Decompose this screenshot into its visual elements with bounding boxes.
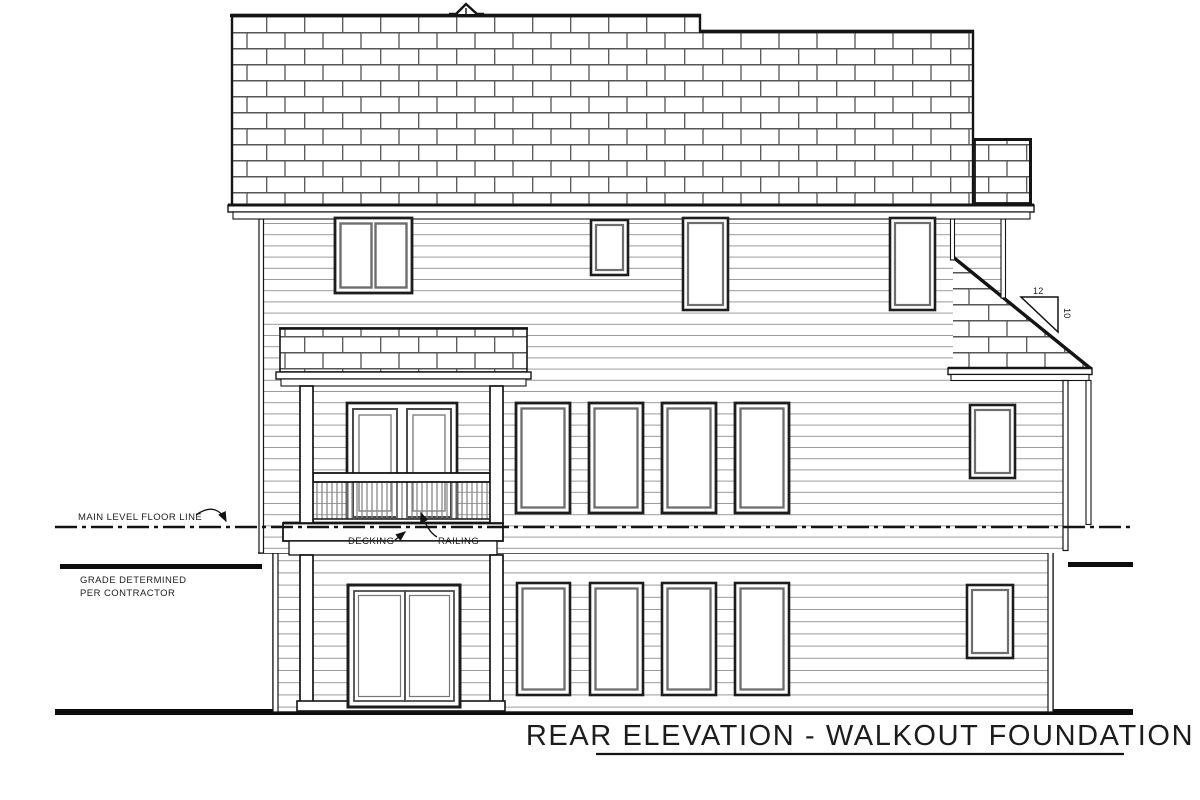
window-main-3 [662,403,716,513]
window-upper-tall-right [890,218,935,310]
deck-post-lower-left [300,555,313,703]
main-floor-line-label: MAIN LEVEL FLOOR LINE [78,512,202,523]
window-upper-double [335,218,412,293]
window-basement-1 [517,583,570,695]
drawing-title: REAR ELEVATION - WALKOUT FOUNDATION [526,720,1194,752]
title-block: REAR ELEVATION - WALKOUT FOUNDATION [526,720,1194,754]
secondary-roof-block [974,138,1032,204]
grade-note-line1: GRADE DETERMINED [80,575,186,586]
ridge-vent [449,4,484,14]
deck-post-upper-right [490,386,503,523]
railing-label: RAILING [438,536,479,547]
deck-post-upper-left [300,386,313,523]
grade-line-left [60,564,262,569]
window-basement-3 [662,583,716,695]
pitch-run-label: 12 [1033,286,1044,296]
rear-elevation-drawing: MAIN LEVEL FLOOR LINE GRADE DETERMINED P… [0,0,1200,800]
window-main-1 [516,403,570,513]
window-upper-small [591,220,628,275]
railing-balusters [317,483,487,519]
basement-right-corner-board [1048,550,1053,712]
pitch-rise-label: 10 [1062,308,1072,319]
downspout [1086,381,1091,525]
window-basement-small [967,585,1013,658]
window-upper-tall-center [683,218,728,310]
basement-left-corner-board [273,553,278,712]
railing-top-rail [313,473,490,482]
left-corner-board [259,219,264,553]
window-basement-2 [590,583,643,695]
window-wing [970,405,1015,478]
wing-corner-board-right [1001,219,1006,298]
deck-post-lower-right [490,555,503,703]
decking-label: DECKING [348,536,394,547]
window-main-2 [589,403,643,513]
grade-line-right [1068,562,1133,567]
sliding-glass-door [348,585,460,707]
elevation-drawing-sheet: MAIN LEVEL FLOOR LINE GRADE DETERMINED P… [0,0,1200,800]
window-basement-4 [735,583,789,695]
main-roof [228,4,1034,219]
grade-note-line2: PER CONTRACTOR [80,588,175,599]
wing-corner-board-left [951,219,955,260]
window-main-4 [735,403,789,513]
wing-right-corner-board [1063,381,1068,551]
wing-eave-fascia-lower [951,375,1089,381]
deck-roof [276,328,531,386]
